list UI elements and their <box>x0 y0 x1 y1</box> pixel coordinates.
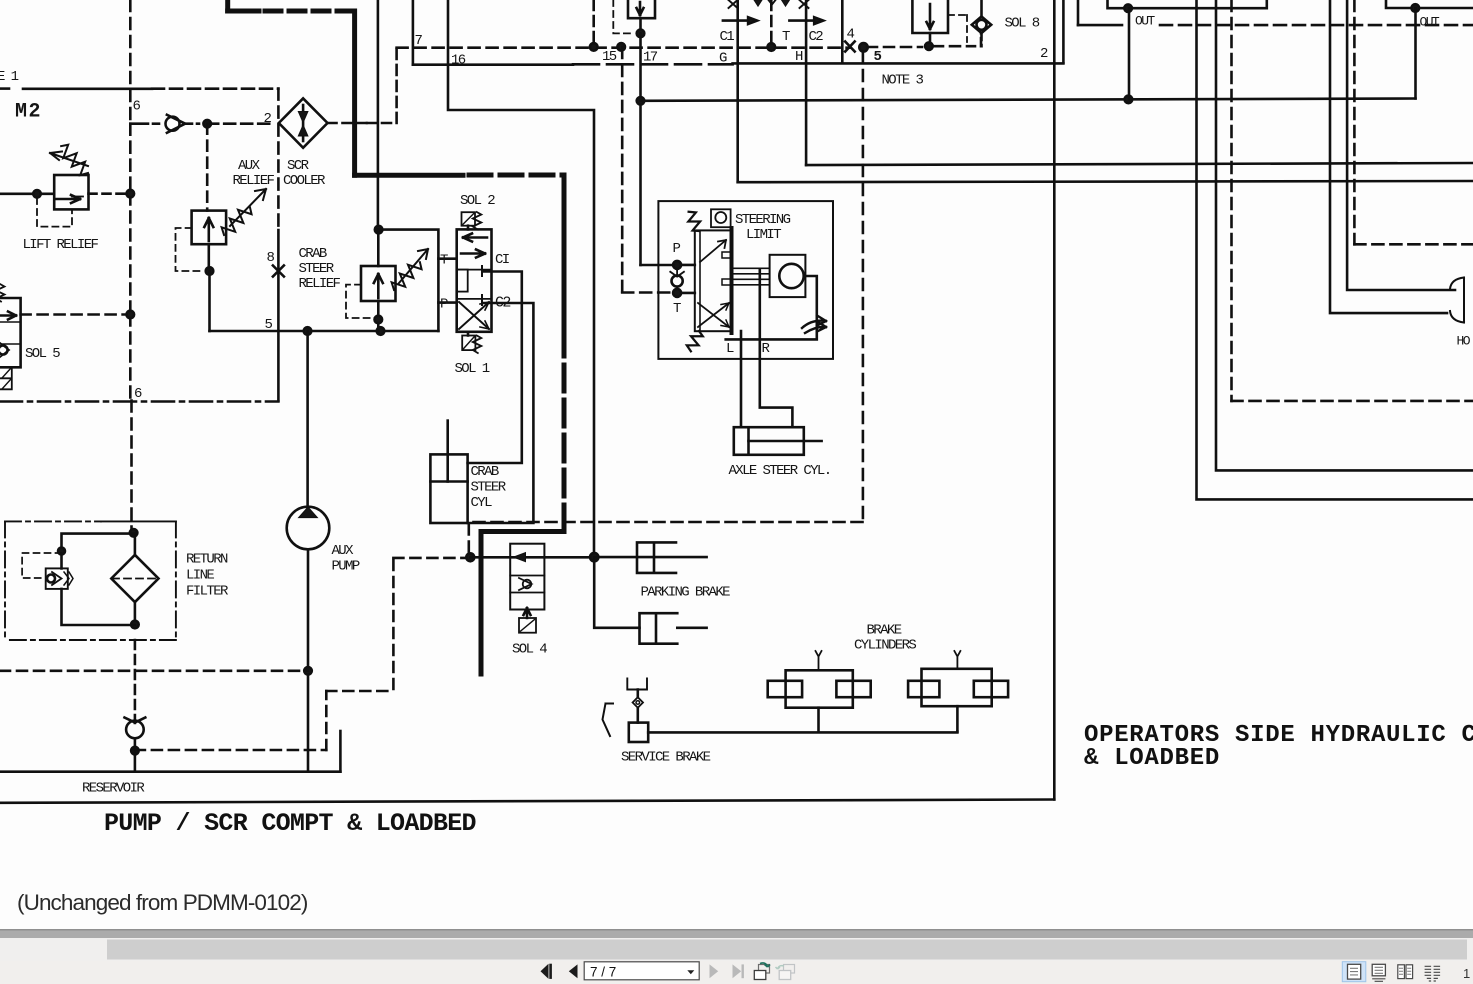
svg-text:4: 4 <box>847 27 855 43</box>
svg-text:(Unchanged from PDMM-0102): (Unchanged from PDMM-0102) <box>17 890 308 915</box>
svg-text:SCR: SCR <box>287 158 310 174</box>
svg-text:M2: M2 <box>15 101 42 124</box>
svg-text:5: 5 <box>265 317 273 333</box>
svg-text:C1: C1 <box>720 29 735 45</box>
svg-text:LIFT RELIEF: LIFT RELIEF <box>23 237 99 253</box>
svg-text:2: 2 <box>264 111 272 127</box>
svg-text:L: L <box>726 341 734 357</box>
svg-text:CRAB: CRAB <box>471 464 499 480</box>
svg-text:LIMIT: LIMIT <box>746 227 781 243</box>
svg-text:CI: CI <box>495 252 509 268</box>
svg-text:P: P <box>440 297 448 313</box>
svg-text:7 / 7: 7 / 7 <box>590 965 616 980</box>
svg-text:PARKING BRAKE: PARKING BRAKE <box>641 585 731 601</box>
svg-text:H: H <box>795 49 803 65</box>
svg-text:P: P <box>673 241 681 257</box>
svg-text:C2: C2 <box>809 29 824 45</box>
svg-text:& LOADBED: & LOADBED <box>1084 745 1220 772</box>
svg-text:AUX: AUX <box>238 158 261 174</box>
svg-text:RETURN: RETURN <box>186 552 228 568</box>
svg-text:2: 2 <box>1040 46 1048 62</box>
svg-text:CRAB: CRAB <box>299 246 327 262</box>
svg-text:6: 6 <box>134 386 142 402</box>
svg-text:SOL 5: SOL 5 <box>25 346 60 362</box>
svg-text:SOL 1: SOL 1 <box>455 361 490 377</box>
svg-text:OUT: OUT <box>1135 14 1155 29</box>
svg-text:T: T <box>782 29 790 45</box>
svg-text:1: 1 <box>1463 966 1470 981</box>
svg-text:SOL 4: SOL 4 <box>512 642 547 658</box>
svg-text:RESERVOIR: RESERVOIR <box>82 781 145 797</box>
svg-text:15: 15 <box>602 49 617 65</box>
svg-text:RELIEF: RELIEF <box>299 276 341 292</box>
svg-text:HO: HO <box>1457 334 1471 349</box>
svg-text:COOLER: COOLER <box>283 173 326 189</box>
svg-text:AXLE STEER CYL.: AXLE STEER CYL. <box>729 463 831 479</box>
svg-text:T: T <box>440 253 448 269</box>
svg-text:SOL 8: SOL 8 <box>1005 16 1040 32</box>
svg-text:SOL 2: SOL 2 <box>460 193 495 209</box>
svg-text:RELIEF: RELIEF <box>233 173 275 189</box>
svg-text:PUMP / SCR COMPT & LOADBED: PUMP / SCR COMPT & LOADBED <box>104 809 477 838</box>
svg-text:17: 17 <box>643 50 658 66</box>
svg-text:NOTE 3: NOTE 3 <box>882 73 924 89</box>
svg-text:OUT: OUT <box>1420 15 1440 30</box>
svg-text:STEERING: STEERING <box>735 212 791 228</box>
svg-text:C2: C2 <box>495 295 510 312</box>
svg-text:LINE: LINE <box>186 568 214 584</box>
svg-text:G: G <box>719 51 727 67</box>
svg-text:BRAKE: BRAKE <box>867 623 902 639</box>
svg-text:8: 8 <box>267 250 275 266</box>
svg-text:FILTER: FILTER <box>186 584 229 600</box>
svg-text:STEER: STEER <box>471 480 507 496</box>
svg-text:16: 16 <box>451 53 466 69</box>
svg-text:SERVICE BRAKE: SERVICE BRAKE <box>621 750 711 766</box>
svg-text:E 1: E 1 <box>0 69 19 85</box>
svg-text:7: 7 <box>415 33 423 49</box>
svg-text:6: 6 <box>133 99 141 115</box>
svg-text:STEER: STEER <box>299 261 335 277</box>
svg-text:PUMP: PUMP <box>332 559 360 575</box>
svg-text:T: T <box>673 301 681 317</box>
svg-text:5: 5 <box>874 49 882 65</box>
svg-text:CYL: CYL <box>471 495 493 511</box>
svg-text:AUX: AUX <box>332 543 355 559</box>
svg-text:CYLINDERS: CYLINDERS <box>854 638 916 654</box>
